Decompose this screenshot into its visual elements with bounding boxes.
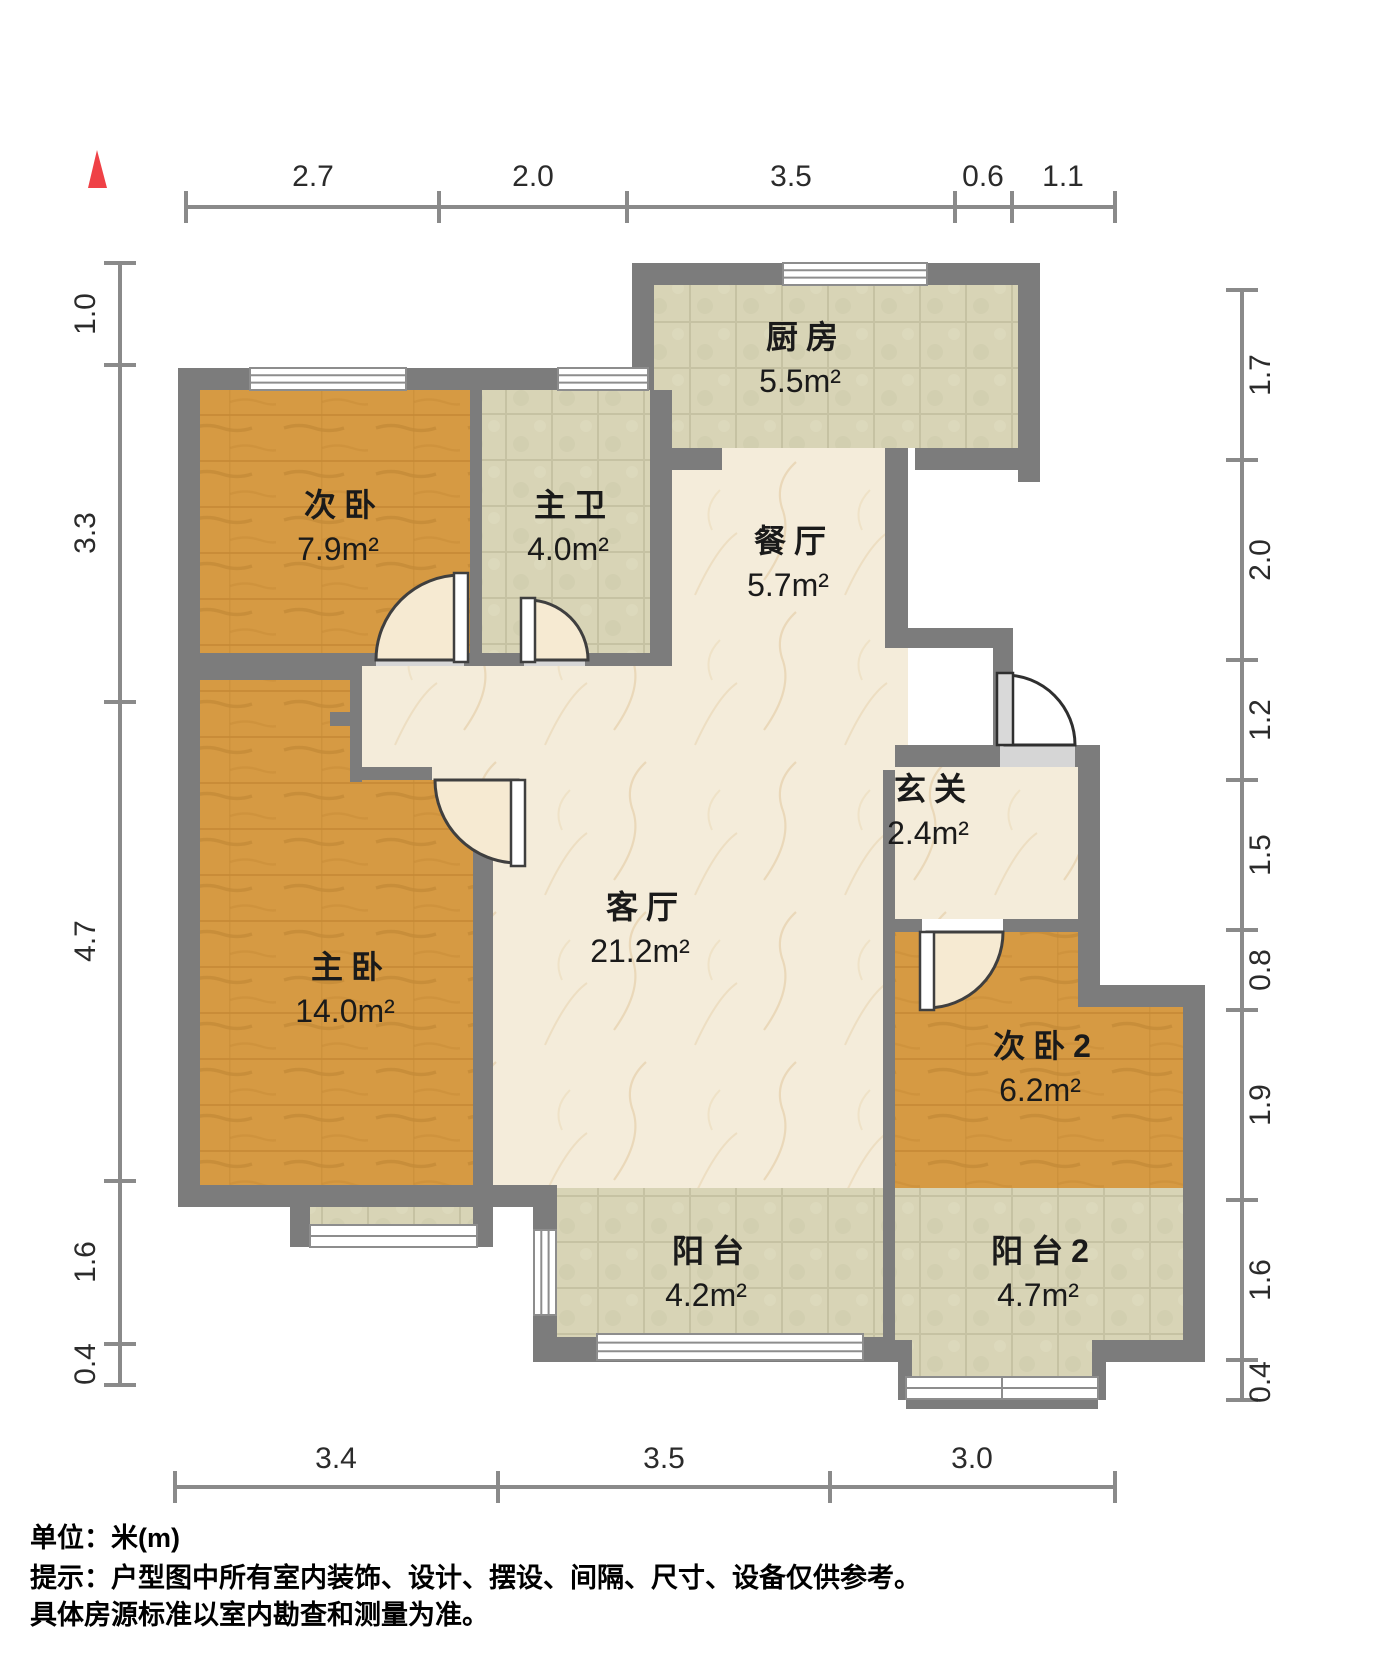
door-swing-entrance [1005, 675, 1075, 745]
area-balcony1: 4.2m² [665, 1277, 747, 1313]
balcony2-bay-floor [912, 1340, 1092, 1377]
door-leaf-entrance [997, 673, 1013, 745]
label-balcony1: 阳台 [672, 1233, 752, 1269]
footer-tip-line2: 具体房源标准以室内勘查和测量为准。 [30, 1599, 489, 1630]
north-arrow-icon [88, 150, 107, 188]
label-balcony2: 阳台2 [991, 1233, 1097, 1269]
dim-right-6: 1.6 [1244, 1259, 1277, 1301]
wall-entry-bottom-a [895, 919, 922, 932]
dim-right-5: 1.9 [1244, 1084, 1277, 1126]
door-leaf-bedroom3 [920, 932, 934, 1010]
wall-kitchen-bottom-right [915, 448, 1040, 470]
label-dining: 餐厅 [754, 523, 834, 559]
wall-master-bay-left [290, 1207, 310, 1247]
window-bathroom-top [558, 368, 648, 390]
window-balcony1-bottom [597, 1334, 863, 1360]
area-balcony2: 4.7m² [997, 1277, 1079, 1313]
dim-top-0: 2.7 [292, 160, 334, 193]
dim-left-3: 1.6 [69, 1241, 102, 1283]
area-bedroom2: 7.9m² [297, 531, 379, 567]
wall-niche-stub [330, 712, 352, 726]
floorplan-page: 次卧 7.9m² 主卫 4.0m² 厨房 5.5m² 餐厅 5.7m² 玄关 2… [0, 0, 1394, 1675]
dim-left-1: 3.3 [69, 512, 102, 554]
dim-top-4: 1.1 [1042, 160, 1084, 193]
door-leaf-bathroom [521, 598, 535, 662]
area-living: 21.2m² [590, 933, 690, 969]
wall-bed2-bath-divider [470, 390, 482, 666]
dim-left-2: 4.7 [69, 920, 102, 962]
wall-left-exterior [178, 368, 200, 1207]
wall-master-bottom [178, 1185, 533, 1207]
window-master-bay [310, 1225, 477, 1247]
wall-living-right-divider [883, 770, 895, 1362]
wall-right-exterior [1183, 1007, 1205, 1362]
label-kitchen: 厨房 [766, 319, 846, 355]
label-entry: 玄关 [894, 771, 974, 807]
area-entry: 2.4m² [887, 815, 969, 851]
label-bathroom: 主卫 [534, 487, 614, 523]
wall-bath-right [650, 390, 672, 666]
dim-right-2: 1.2 [1244, 699, 1277, 741]
window-kitchen-top [783, 263, 927, 285]
footer: 单位：米(m) 提示：户型图中所有室内装饰、设计、摆设、间隔、尺寸、设备仅供参考… [30, 1522, 921, 1630]
label-bedroom2: 次卧 [304, 487, 384, 523]
label-living: 客厅 [606, 889, 686, 925]
footer-unit-line: 单位：米(m) [30, 1522, 180, 1553]
dim-top-2: 3.5 [770, 160, 812, 193]
footer-tip-line1: 提示：户型图中所有室内装饰、设计、摆设、间隔、尺寸、设备仅供参考。 [30, 1562, 921, 1593]
wall-step-right [1097, 985, 1205, 1007]
dim-bottom-0: 3.4 [315, 1442, 357, 1475]
area-kitchen: 5.5m² [759, 363, 841, 399]
door-sill-entrance [1000, 745, 1075, 767]
dim-left-0: 1.0 [69, 293, 102, 335]
area-bedroom3: 6.2m² [999, 1072, 1081, 1108]
door-leaf-master [511, 780, 525, 866]
label-master: 主卧 [311, 949, 391, 985]
wall-balcony2-bottom-a [883, 1340, 912, 1362]
wall-corridor-top-a [362, 653, 376, 666]
wall-entry-top-left [895, 745, 1000, 767]
floorplan-svg: 次卧 7.9m² 主卫 4.0m² 厨房 5.5m² 餐厅 5.7m² 玄关 2… [0, 0, 1394, 1675]
dim-bottom-2: 3.0 [951, 1442, 993, 1475]
wall-entry-right [1078, 745, 1100, 1007]
dim-top-1: 2.0 [512, 160, 554, 193]
wall-dining-right [885, 448, 908, 648]
wall-bed2-master-divider [178, 653, 362, 680]
area-master: 14.0m² [295, 993, 395, 1029]
wall-balcony2-bottom-b [1092, 1340, 1205, 1362]
dim-right-1: 2.0 [1244, 539, 1277, 581]
window-balcony1-left [534, 1230, 556, 1315]
dim-right-7: 0.4 [1244, 1361, 1277, 1403]
label-bedroom3: 次卧2 [993, 1028, 1099, 1064]
window-bedroom2-top [250, 368, 406, 390]
dim-right-4: 0.8 [1244, 949, 1277, 991]
dim-left-4: 0.4 [69, 1343, 102, 1385]
wall-entry-stub-h [908, 628, 1013, 648]
dim-right-3: 1.5 [1244, 834, 1277, 876]
wall-master-entry [350, 767, 432, 780]
dim-bottom-1: 3.5 [643, 1442, 685, 1475]
wall-entry-bottom-b [1003, 919, 1078, 932]
dim-top-3: 0.6 [962, 160, 1004, 193]
area-dining: 5.7m² [747, 567, 829, 603]
wall-corridor-top-b [464, 653, 524, 666]
window-balcony2-bay [906, 1377, 1098, 1399]
door-leaf-bedroom2 [454, 573, 468, 662]
wall-corridor-top-c [585, 653, 672, 666]
area-bathroom: 4.0m² [527, 531, 609, 567]
dim-right-0: 1.7 [1244, 354, 1277, 396]
